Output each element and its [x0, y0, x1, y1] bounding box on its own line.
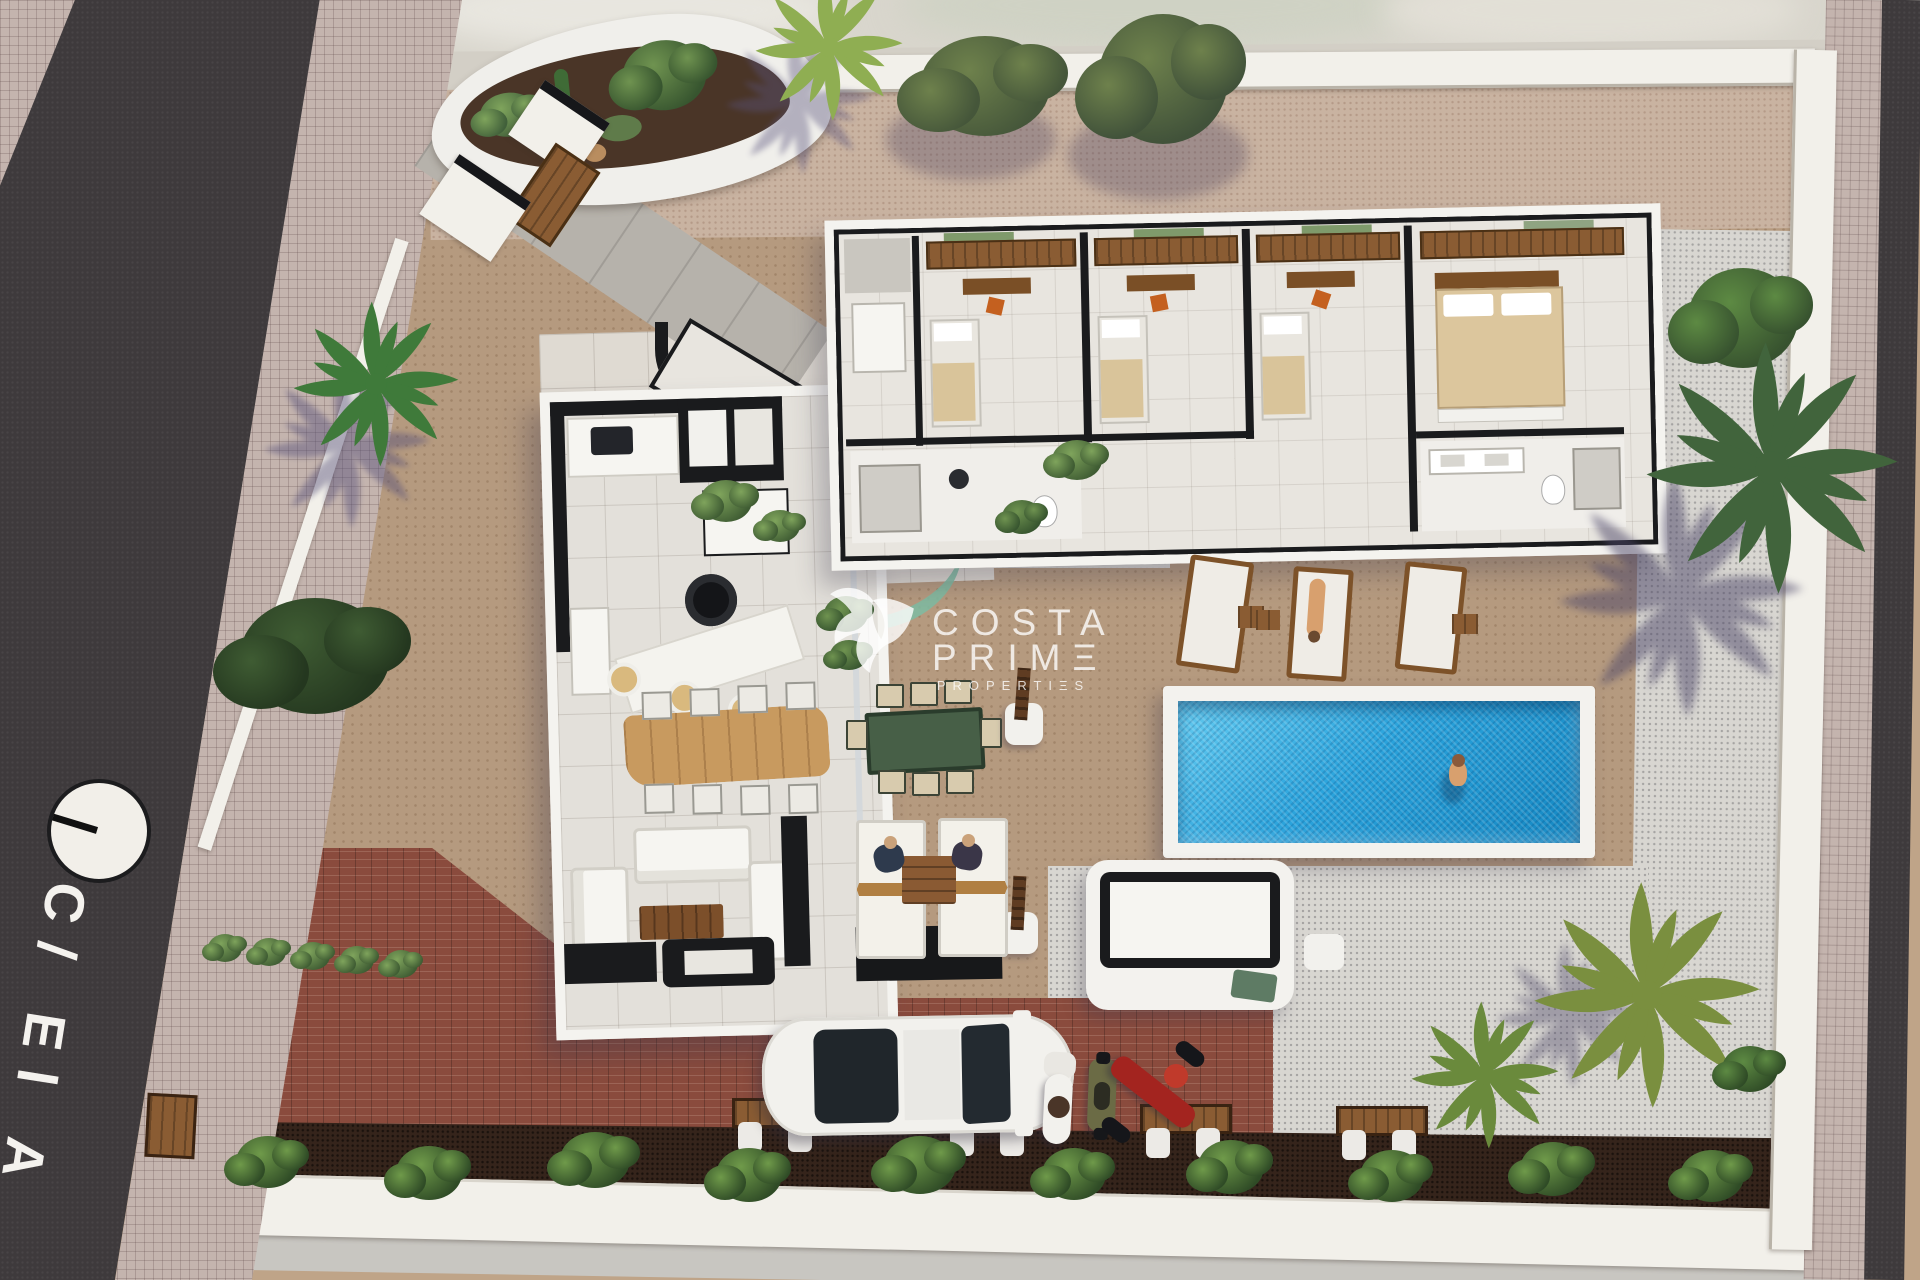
pillow [934, 323, 972, 342]
outdoor-chair [846, 720, 868, 750]
patio-coffee-table [902, 856, 956, 904]
pillow [1102, 319, 1140, 338]
bush-left [240, 598, 390, 714]
dining-chair [689, 688, 720, 717]
master-wardrobe [1420, 227, 1625, 259]
shrub [1042, 1148, 1106, 1200]
kitchen-tall-units [678, 396, 784, 483]
chair-orange [1311, 289, 1331, 309]
shrub [236, 1136, 300, 1188]
partition-wall [1080, 232, 1092, 442]
sunbather-body [1306, 578, 1326, 637]
lounger-side-table [1452, 614, 1478, 634]
shrub [560, 1132, 630, 1188]
outdoor-chair [878, 770, 906, 794]
daybed-towel [1230, 969, 1277, 1003]
car-panoramic-roof [813, 1028, 899, 1123]
shrub [396, 1146, 462, 1200]
bed-bench [1438, 406, 1564, 423]
dining-chair [644, 783, 675, 814]
daybed-frame [1100, 872, 1280, 968]
bench-foot [1342, 1130, 1366, 1160]
coffee-table [639, 904, 724, 940]
motorcycle-tank [1164, 1064, 1188, 1088]
master-bed [1435, 286, 1565, 409]
kitchen-unit-door [688, 410, 727, 467]
daybed-side-stool [1304, 934, 1344, 970]
watermark-line2: PRIMΞ [932, 640, 1100, 676]
sofa-three-seat [633, 825, 752, 884]
double-sink-counter [1428, 447, 1525, 475]
motorcycle-body [1107, 1052, 1199, 1131]
motorcycle-rear-wheel [1098, 1114, 1133, 1146]
outdoor-dining-table [864, 707, 985, 775]
shrub [1360, 1150, 1424, 1202]
wall-cap [564, 942, 657, 984]
patio-bush [760, 510, 800, 542]
shrub [1520, 1142, 1586, 1196]
chair-orange [1150, 293, 1169, 312]
hedge-bush [384, 950, 418, 978]
road-marking-circle [47, 779, 151, 883]
dining-chair [785, 681, 816, 710]
hedge-bush [208, 934, 242, 962]
dining-chair [692, 784, 723, 815]
car-mirror [1013, 1010, 1031, 1022]
partition-wall [912, 236, 923, 446]
olive-tree [1098, 14, 1228, 144]
sun-lounger [1286, 566, 1354, 682]
blanket [1100, 359, 1143, 418]
palm-tree-bottom-small [1410, 1000, 1560, 1150]
outdoor-chair [912, 772, 940, 796]
pillow [1264, 316, 1302, 335]
partition-wall [1242, 229, 1254, 439]
watermark-line3: PROPERTIΞS [927, 676, 1100, 696]
cooktop [591, 426, 634, 455]
road-marking-hand [52, 814, 98, 834]
kitchen-sink-counter [569, 607, 611, 696]
sink [1484, 454, 1508, 466]
single-bed [1097, 315, 1149, 424]
pillow [1443, 294, 1493, 317]
desk [963, 277, 1031, 294]
white-car [761, 1013, 1075, 1136]
hummingbird-logo-icon [824, 582, 922, 680]
outdoor-chair [980, 718, 1002, 748]
hedge-bush [296, 942, 330, 970]
blanket [1262, 356, 1305, 415]
daybed-mattress [1110, 882, 1270, 958]
wardrobe [926, 239, 1077, 270]
dining-chair [641, 691, 672, 720]
red-motorcycle [1098, 1036, 1208, 1148]
hall-closet [851, 302, 906, 373]
blanket [932, 363, 975, 422]
swimmer-head [1452, 754, 1465, 767]
bedroom-wing [824, 203, 1667, 570]
wardrobe [1094, 235, 1239, 266]
washbasin [949, 469, 969, 489]
fireplace-hood [684, 573, 737, 626]
hedge-bush [340, 946, 374, 974]
watermark-text: COSTA PRIMΞ PROPERTIΞS [920, 606, 1100, 696]
desk [1127, 274, 1195, 291]
wall-cap-frame [662, 937, 775, 988]
shrub [1198, 1140, 1264, 1194]
shrub [1722, 1046, 1778, 1092]
wall-cap-vertical [781, 816, 811, 967]
car-mirror [1015, 1124, 1033, 1136]
seated-person-head [884, 836, 897, 849]
palm-tree-right [1644, 340, 1900, 596]
sink [1440, 454, 1464, 467]
shrub [1680, 1150, 1744, 1202]
patio-bush [700, 480, 752, 522]
chair-orange [986, 297, 1005, 316]
watermark: COSTA PRIMΞ PROPERTIΞS [824, 582, 1114, 712]
palm-tree-top [754, 0, 904, 122]
dining-chair [737, 685, 768, 714]
entry-hall [844, 238, 911, 293]
car-roof [903, 1029, 961, 1120]
watermark-line1: COSTA [932, 606, 1100, 640]
pool-water [1178, 701, 1580, 843]
gravel-bush [1052, 440, 1102, 480]
seated-person-head [962, 834, 975, 847]
gravel-bush [1002, 500, 1042, 534]
lounger-side-table [1256, 610, 1280, 630]
car-windshield [961, 1023, 1011, 1124]
white-scooter [1035, 1051, 1080, 1153]
pillow [1501, 293, 1551, 316]
kitchen-unit-door [734, 409, 773, 466]
wall-cap-frame-inner [684, 949, 753, 975]
wardrobe [1256, 232, 1401, 263]
shower [859, 464, 922, 533]
sunbather-head [1308, 630, 1321, 643]
outdoor-chair [946, 770, 974, 794]
swimming-pool [1163, 686, 1595, 858]
partition-wall-master [1404, 225, 1418, 531]
palm-tree-left [292, 300, 460, 468]
olive-tree [920, 36, 1050, 136]
outdoor-daybed [1086, 860, 1294, 1010]
garden-gate [144, 1093, 197, 1160]
single-bed [1259, 312, 1311, 421]
desk [1287, 271, 1355, 288]
shrub [716, 1148, 782, 1202]
dining-chair [740, 785, 771, 816]
corridor-wall [846, 431, 1254, 447]
aerial-villa-render: C/ El A [0, 0, 1920, 1280]
dining-chair [788, 783, 819, 814]
single-bed [930, 319, 982, 428]
hedge-bush [252, 938, 286, 966]
shrub [884, 1136, 956, 1194]
